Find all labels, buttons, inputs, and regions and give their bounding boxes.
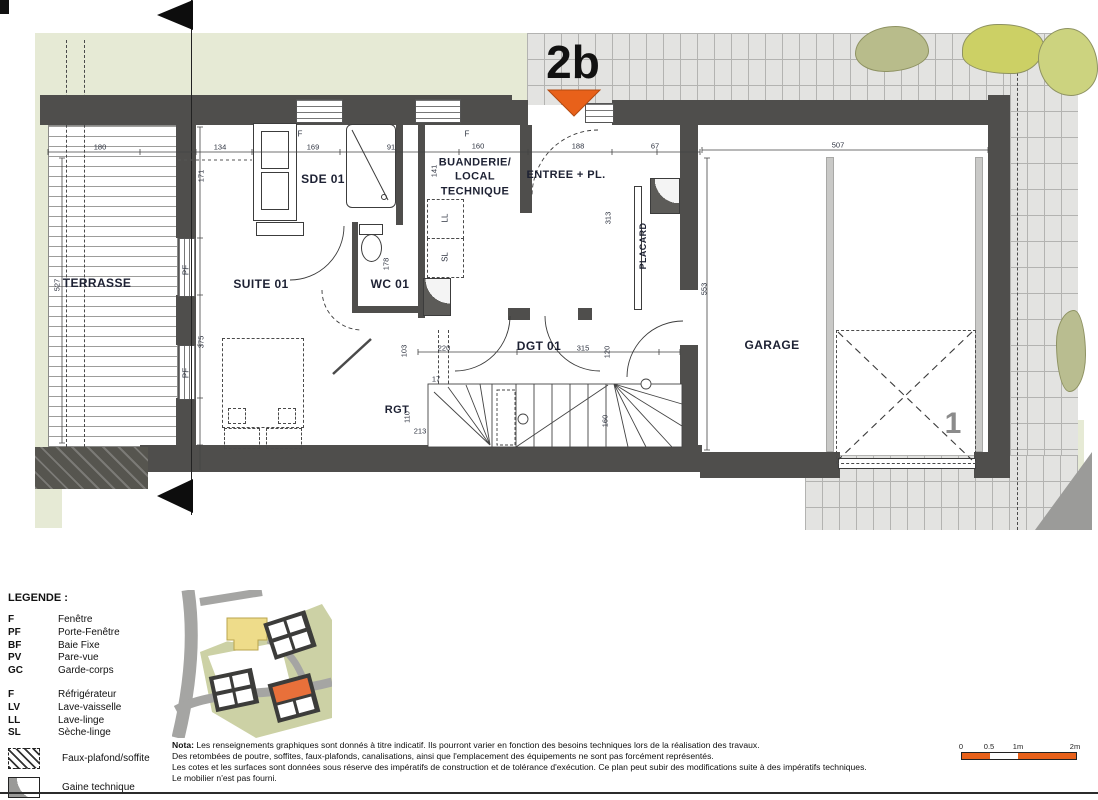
sheet-border [0, 792, 1098, 794]
scale-bar: 00.51m2m [958, 742, 1082, 766]
scale-label: 1m [1013, 742, 1023, 751]
opening-label-pf: PF [182, 265, 191, 275]
room-label-buanderie: BUANDERIE/ LOCAL TECHNIQUE [439, 156, 511, 199]
room-label-garage: GARAGE [744, 338, 799, 354]
dimension-label: 169 [307, 143, 320, 152]
room-label-terrasse: TERRASSE [63, 276, 132, 292]
dimension-label: 17 [432, 375, 440, 384]
room-label-dgt: DGT 01 [517, 339, 561, 355]
dimension-label: 507 [832, 141, 845, 150]
nota-text: Nota: Les renseignements graphiques sont… [172, 740, 932, 784]
legend-item: LVLave-vaisselle [8, 702, 168, 715]
hatch-icon [8, 748, 40, 769]
legend-item: PVPare-vue [8, 652, 168, 665]
dimension-label: 220 [438, 344, 451, 353]
room-label-sde: SDE 01 [301, 172, 345, 188]
opening-label-f: F [465, 130, 470, 139]
nota-line: Des retombées de poutre, soffites, faux-… [172, 751, 932, 762]
parking-space-number: 1 [945, 407, 962, 441]
gaine-icon [8, 777, 40, 798]
scale-segment [962, 753, 990, 759]
legend-item: SLSèche-linge [8, 727, 168, 740]
legend-item: PFPorte-Fenêtre [8, 627, 168, 640]
dimension-label: 188 [572, 142, 585, 151]
dimension-label: 91 [387, 143, 395, 152]
room-label-placard: PLACARD [638, 223, 650, 270]
legend-item: GCGarde-corps [8, 665, 168, 678]
dimension-label: 180 [94, 143, 107, 152]
dimension-label: 171 [197, 170, 206, 183]
dimension-label: 67 [651, 142, 659, 151]
appliance-tag-sl: SL [441, 252, 450, 262]
nota-line: Le mobilier n'est pas fourni. [172, 773, 932, 784]
dimension-label: 110 [403, 411, 412, 423]
scale-segment [1018, 753, 1076, 759]
legend-item: FFenêtre [8, 614, 168, 627]
room-label-wc: WC 01 [371, 277, 410, 293]
opening-label-pf: PF [182, 368, 191, 378]
dimension-label: 527 [53, 279, 62, 292]
legend-item: LLLave-linge [8, 715, 168, 728]
dimension-label: 315 [577, 344, 590, 353]
dimension-label: 160 [472, 142, 485, 151]
legend-symbol-hatch: Faux-plafond/soffite [8, 748, 168, 769]
dimension-label: 103 [400, 345, 409, 358]
dimension-label: 375 [197, 336, 206, 349]
legend-item: FRéfrigérateur [8, 689, 168, 702]
room-label-suite: SUITE 01 [233, 277, 288, 293]
legend-symbol-gaine: Gaine technique [8, 777, 168, 798]
legend-title: LEGENDE : [8, 592, 168, 604]
appliance-tag-ll: LL [441, 214, 450, 223]
dimension-label: 134 [214, 143, 227, 152]
legend-item: BFBaie Fixe [8, 640, 168, 653]
legend: LEGENDE : FFenêtrePFPorte-FenêtreBFBaie … [8, 592, 168, 798]
lot-number: 2b [546, 35, 600, 89]
dimension-label: 160 [601, 415, 610, 428]
site-plan-thumbnail [172, 590, 332, 738]
dimension-label: 553 [700, 283, 709, 296]
dimension-label: 141 [430, 165, 439, 178]
opening-label-f: F [298, 130, 303, 139]
dimension-label: 120 [603, 346, 612, 359]
scale-segment [990, 753, 1018, 759]
scale-label: 0 [959, 742, 963, 751]
dimension-label: 313 [604, 212, 613, 225]
scale-label: 2m [1070, 742, 1080, 751]
room-label-entree: ENTREE + PL. [526, 168, 605, 182]
scale-label: 0.5 [984, 742, 994, 751]
nota-line: Les cotes et les surfaces sont données s… [172, 762, 932, 773]
dimension-label: 178 [382, 258, 391, 271]
dimension-label: 213 [414, 427, 427, 436]
floor-plan-sheet: TERRASSESUITE 01SDE 01WC 01BUANDERIE/ LO… [0, 0, 1098, 800]
nota-line: Nota: Les renseignements graphiques sont… [172, 740, 932, 751]
